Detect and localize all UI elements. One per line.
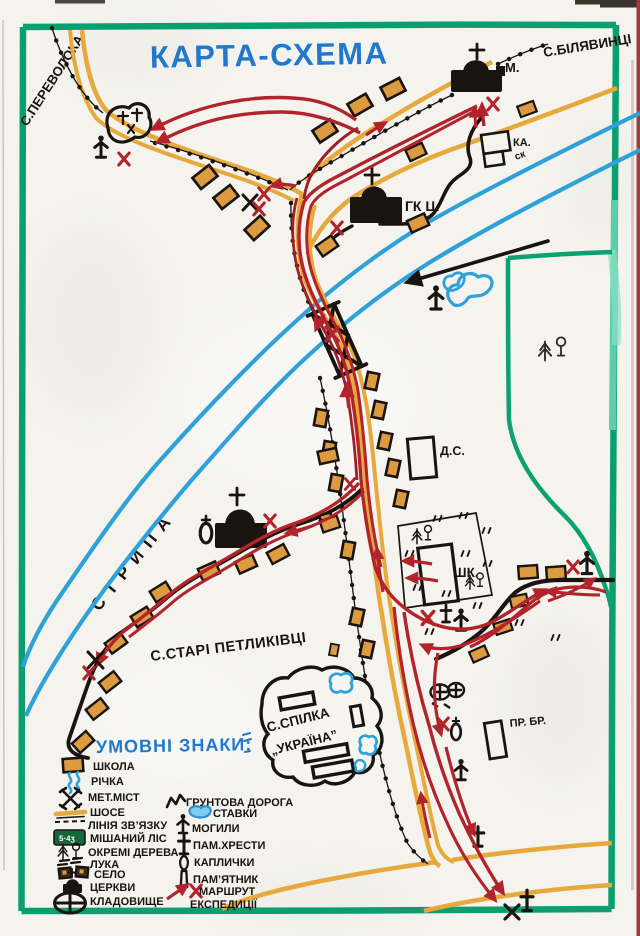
- svg-text:ШОСЕ: ШОСЕ: [90, 807, 125, 819]
- svg-text:КАРТА-СХЕМА: КАРТА-СХЕМА: [150, 36, 389, 75]
- svg-text:СЕЛО: СЕЛО: [94, 869, 126, 881]
- svg-text:РІЧКА: РІЧКА: [91, 776, 124, 788]
- svg-text:5·4ʒ: 5·4ʒ: [59, 834, 76, 843]
- svg-text:СТАВКИ: СТАВКИ: [213, 808, 257, 820]
- svg-text:ОКРЕМІ ДЕРЕВА: ОКРЕМІ ДЕРЕВА: [88, 847, 178, 859]
- svg-text:ЛІНІЯ ЗВ’ЯЗКУ: ЛІНІЯ ЗВ’ЯЗКУ: [88, 820, 167, 832]
- svg-text:ПАМ’ЯТНИК: ПАМ’ЯТНИК: [193, 874, 259, 886]
- svg-text:М.: М.: [505, 60, 519, 75]
- svg-text:КА.: КА.: [513, 137, 531, 149]
- svg-text:Д.С.: Д.С.: [440, 444, 465, 458]
- svg-text:МОГИЛИ: МОГИЛИ: [192, 823, 240, 835]
- svg-text:КЛАДОВИЩЕ: КЛАДОВИЩЕ: [90, 896, 164, 908]
- svg-text:УМОВНІ ЗНАКИ:: УМОВНІ ЗНАКИ:: [96, 734, 253, 757]
- svg-text:ГК Ц.: ГК Ц.: [405, 198, 440, 214]
- svg-text:КАПЛИЧКИ: КАПЛИЧКИ: [194, 857, 254, 869]
- svg-text:ЦЕРКВИ: ЦЕРКВИ: [90, 882, 135, 894]
- svg-text:ЕКСПЕДИЦІЇ: ЕКСПЕДИЦІЇ: [190, 898, 258, 911]
- svg-text:ШК.: ШК.: [453, 565, 479, 580]
- svg-text:МАРШРУТ: МАРШРУТ: [199, 886, 256, 898]
- svg-text:ШКОЛА: ШКОЛА: [93, 761, 135, 773]
- svg-text:МЕТ.МІСТ: МЕТ.МІСТ: [88, 792, 140, 804]
- svg-text:МІШАНИЙ ЛІС: МІШАНИЙ ЛІС: [90, 832, 167, 845]
- svg-text:ПАМ.ХРЕСТИ: ПАМ.ХРЕСТИ: [193, 840, 265, 852]
